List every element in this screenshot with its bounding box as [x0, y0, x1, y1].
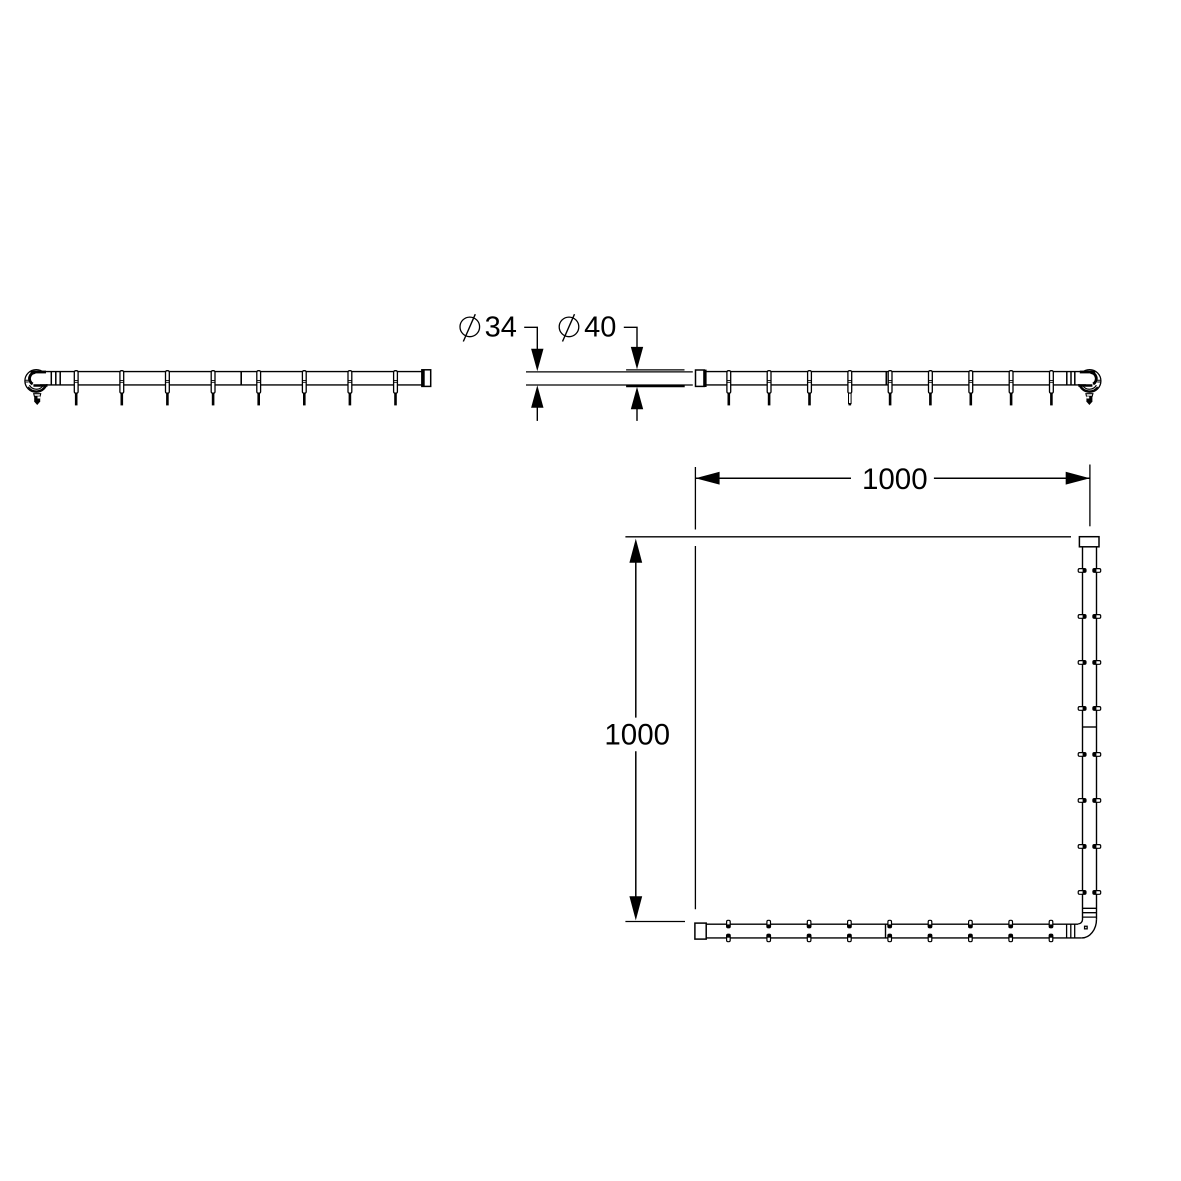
svg-text:40: 40 — [584, 312, 616, 344]
svg-text:34: 34 — [485, 312, 517, 344]
svg-text:1000: 1000 — [604, 718, 670, 751]
svg-text:1000: 1000 — [862, 463, 928, 496]
